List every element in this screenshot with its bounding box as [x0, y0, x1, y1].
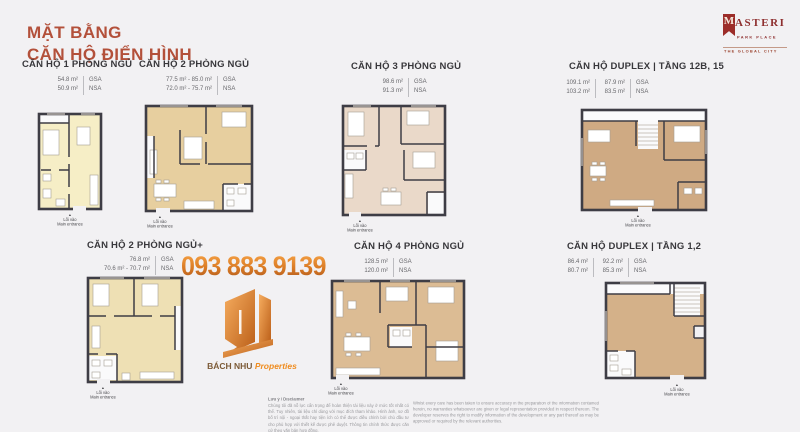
- nsa-label: NSA: [636, 88, 649, 97]
- floor-plan-2br: [144, 104, 254, 213]
- entrance-gap: [336, 375, 349, 380]
- entrance-gap: [97, 379, 110, 384]
- entrance-en: Main entrance: [338, 229, 382, 234]
- balcony: [175, 306, 181, 350]
- unit-duplex12b-nsa-value-2: 83.5 m²: [605, 88, 625, 97]
- entrance-label: ▲ Lối vào Main entrance: [338, 220, 382, 234]
- masteri-logo-row: M ASTERI: [723, 14, 789, 36]
- entrance-gap: [156, 208, 170, 213]
- gsa-label: GSA: [414, 78, 427, 87]
- masteri-flag-icon: M: [723, 14, 735, 36]
- floor-plan-duplex-12b: [580, 108, 708, 212]
- masteri-logo: M ASTERI PARK PLACE THE GLOBAL CITY: [723, 14, 789, 56]
- gsa-label: GSA: [399, 258, 412, 267]
- disclaimer-heading: Lưu ý / Disclaimer: [268, 397, 409, 403]
- unit-1br-gsa-value: 54.8 m²: [58, 76, 78, 85]
- entrance-label: ▲ Lối vào Main entrance: [48, 214, 92, 228]
- floor-plan-4br: [330, 279, 466, 380]
- stair-steps: [674, 288, 700, 312]
- unit-duplex12b-areas: 109.1 m² 103.2 m² 87.9 m² 83.5 m² GSA NS…: [562, 79, 649, 98]
- unit-2br-nsa-value: 72.0 m² - 75.7 m²: [166, 85, 212, 94]
- unit-duplex12-nsa-value-2: 85.3 m²: [603, 267, 623, 276]
- bach-nhu-wordmark: BÁCH NHU Properties: [200, 361, 304, 371]
- flyer-canvas: MẶT BẰNG CĂN HỘ ĐIỂN HÌNH M ASTERI PARK …: [0, 0, 800, 432]
- unit-2br-title: CĂN HỘ 2 PHÒNG NGỦ: [139, 59, 249, 70]
- unit-4br-title: CĂN HỘ 4 PHÒNG NGỦ: [354, 241, 464, 252]
- entrance-gap: [638, 207, 652, 212]
- disclaimer-vi-text: Chúng tôi đã nỗ lực cẩn trọng để hoàn th…: [268, 404, 409, 432]
- balcony: [428, 193, 444, 214]
- entrance-gap: [73, 206, 86, 211]
- gsa-label: GSA: [636, 79, 649, 88]
- unit-duplex12b-title: CĂN HỘ DUPLEX | TẦNG 12B, 15: [569, 61, 724, 72]
- unit-2brplus-nsa-value: 70.6 m² - 70.7 m²: [104, 265, 150, 274]
- unit-2brplus-gsa-value: 76.8 m²: [130, 256, 150, 265]
- nsa-label: NSA: [414, 87, 427, 96]
- nsa-label: NSA: [634, 267, 647, 276]
- disclaimer-en-text: Whilst every care has been taken to ensu…: [413, 402, 599, 424]
- entrance-label: ▲ Lối vào Main entrance: [81, 387, 125, 401]
- masteri-wordmark: ASTERI: [735, 14, 786, 29]
- unit-2br-gsa-value: 77.5 m² - 85.0 m²: [166, 76, 212, 85]
- floor-plan-3br: [341, 104, 447, 217]
- entrance-gap: [670, 375, 684, 380]
- entrance-en: Main entrance: [616, 224, 660, 229]
- phone-number: 093 883 9139: [181, 251, 326, 282]
- unit-duplex12-areas: 86.4 m² 80.7 m² 92.2 m² 85.3 m² GSA NSA: [562, 258, 647, 277]
- unit-duplex12b-gsa-value-2: 87.9 m²: [605, 79, 625, 88]
- floor-plan-2br-plus: [86, 276, 184, 384]
- balcony: [40, 115, 69, 123]
- unit-2brplus-areas: 76.8 m² 70.6 m² - 70.7 m² GSA NSA: [95, 256, 174, 275]
- unit-2br-areas: 77.5 m² - 85.0 m² 72.0 m² - 75.7 m² GSA …: [150, 76, 236, 95]
- unit-4br-areas: 128.5 m² 120.0 m² GSA NSA: [358, 258, 412, 277]
- unit-3br-nsa-value: 91.3 m²: [383, 87, 403, 96]
- entrance-label: ▲ Lối vào Main entrance: [138, 216, 182, 230]
- unit-3br-title: CĂN HỘ 3 PHÒNG NGỦ: [351, 61, 461, 72]
- floor-plan-duplex-12: [604, 281, 707, 380]
- unit-2brplus-title: CĂN HỘ 2 PHÒNG NGỦ+: [87, 240, 203, 251]
- nsa-label: NSA: [161, 265, 174, 274]
- entrance-label: ▲ Lối vào Main entrance: [616, 215, 660, 229]
- entrance-label: ▲ Lối vào Main entrance: [655, 384, 699, 398]
- unit-3br-gsa-value: 98.6 m²: [383, 78, 403, 87]
- unit-1br-areas: 54.8 m² 50.9 m² GSA NSA: [30, 76, 102, 95]
- unit-duplex12-gsa-value-2: 92.2 m²: [603, 258, 623, 267]
- entrance-en: Main entrance: [48, 223, 92, 228]
- masteri-tagline: THE GLOBAL CITY: [724, 50, 767, 54]
- gsa-label: GSA: [161, 256, 174, 265]
- unit-3br-areas: 98.6 m² 91.3 m² GSA NSA: [356, 78, 427, 97]
- disclaimer-en: Whilst every care has been taken to ensu…: [413, 401, 599, 425]
- wall-notch: [694, 326, 705, 338]
- entrance-label: ▲ Lối vào Main entrance: [319, 383, 363, 397]
- entrance-gap: [349, 212, 361, 217]
- unit-duplex12-nsa-value-1: 80.7 m²: [568, 267, 588, 276]
- page-title-line1: MẶT BẰNG: [27, 22, 192, 44]
- nsa-label: NSA: [89, 85, 102, 94]
- entrance-en: Main entrance: [655, 393, 699, 398]
- entrance-en: Main entrance: [138, 225, 182, 230]
- entrance-en: Main entrance: [81, 396, 125, 401]
- bach-nhu-building-icon: [213, 282, 287, 362]
- unit-duplex12-title: CĂN HỘ DUPLEX | TẦNG 1,2: [567, 241, 701, 252]
- masteri-divider: [723, 47, 787, 48]
- gsa-label: GSA: [223, 76, 236, 85]
- unit-duplex12b-gsa-value-1: 109.1 m²: [566, 79, 590, 88]
- nsa-label: NSA: [399, 267, 412, 276]
- masteri-subtitle: PARK PLACE: [737, 36, 771, 40]
- nsa-label: NSA: [223, 85, 236, 94]
- disclaimer-vi: Lưu ý / Disclaimer Chúng tôi đã nỗ lực c…: [268, 397, 409, 432]
- unit-duplex12-gsa-value-1: 86.4 m²: [568, 258, 588, 267]
- floor-plan-1br: [37, 112, 103, 211]
- unit-duplex12b-nsa-value-1: 103.2 m²: [566, 88, 590, 97]
- gsa-label: GSA: [634, 258, 647, 267]
- unit-1br-nsa-value: 50.9 m²: [58, 85, 78, 94]
- unit-4br-nsa-value: 120.0 m²: [364, 267, 388, 276]
- unit-4br-gsa-value: 128.5 m²: [364, 258, 388, 267]
- bach-nhu-name: BÁCH NHU: [207, 361, 252, 371]
- bach-nhu-suffix: Properties: [255, 361, 297, 371]
- unit-1br-title: CĂN HỘ 1 PHÒNG NGỦ: [22, 59, 132, 70]
- gsa-label: GSA: [89, 76, 102, 85]
